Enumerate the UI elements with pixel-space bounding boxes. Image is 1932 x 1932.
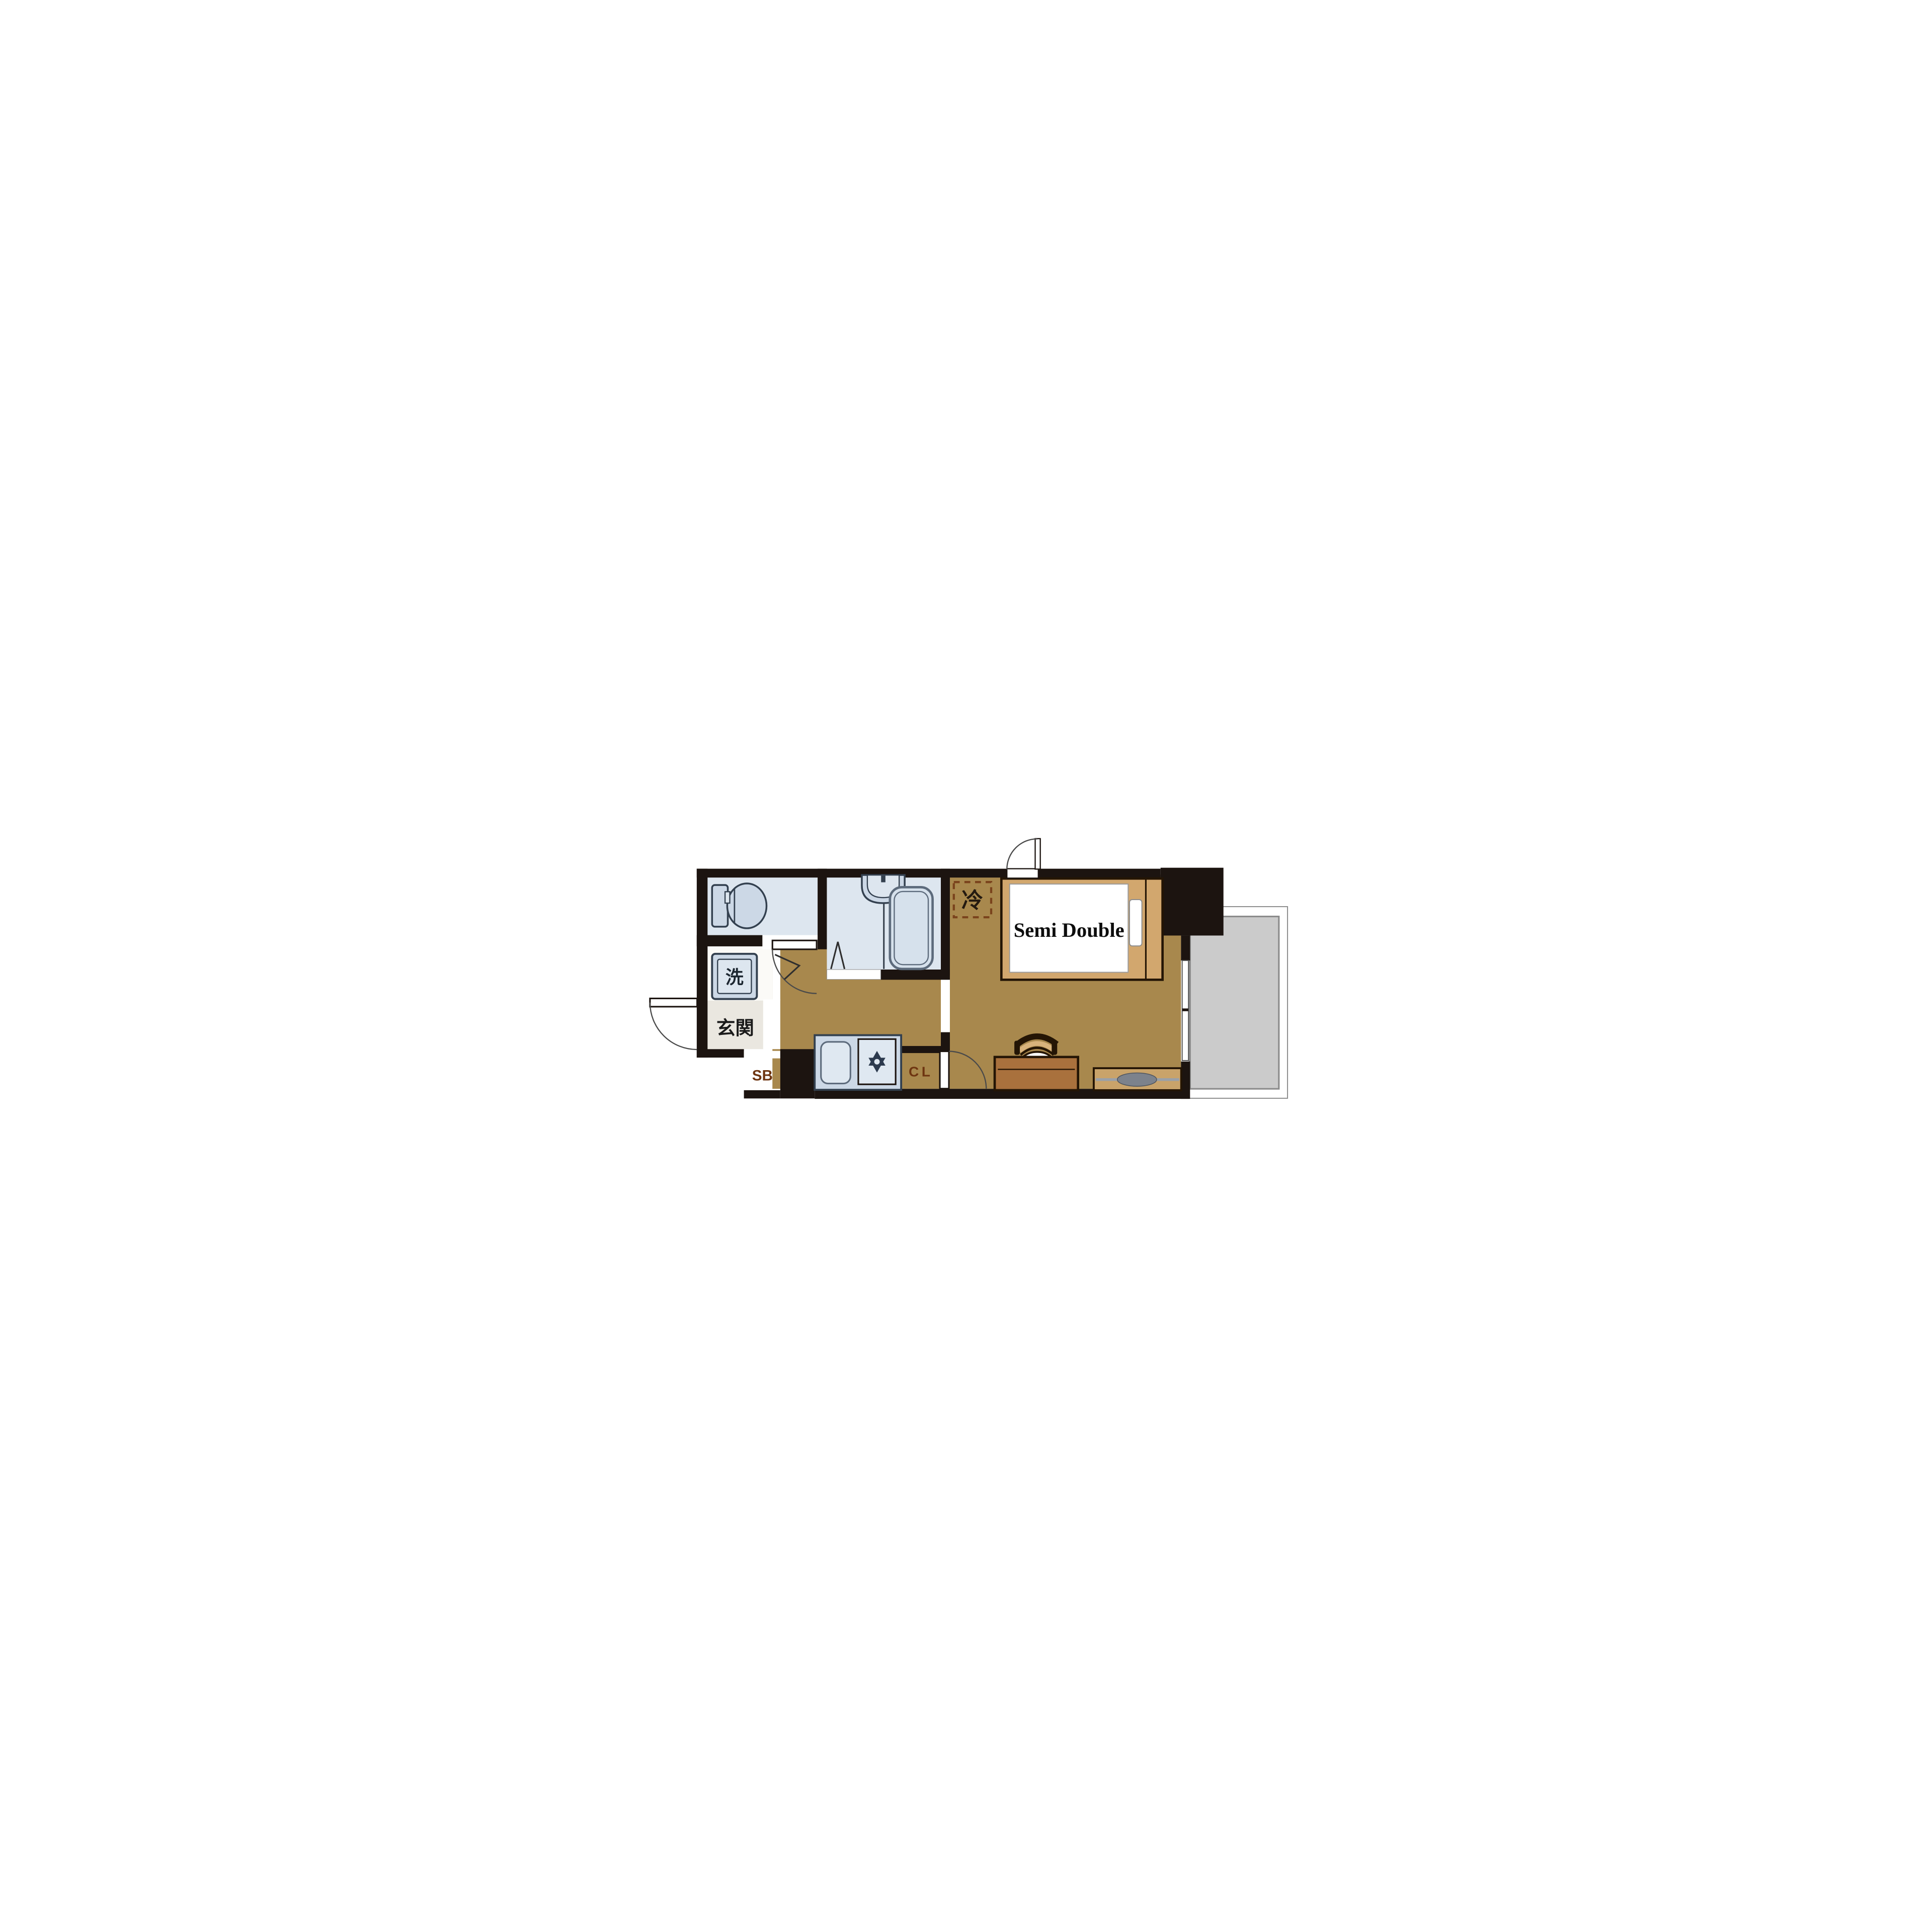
wall-top [697,869,1161,878]
top-door-leaf [1035,839,1040,869]
floor-plan-page: 玄関 洗 冷 SB CL Semi Double [589,589,1343,1343]
desk-top [995,1057,1078,1090]
refrigerator-label: 冷 [961,889,983,913]
wall-partition-mid [941,1032,950,1053]
main-room-door-leaf [940,1052,949,1089]
partition-opening [941,976,950,1032]
basin-faucet [881,875,886,882]
shoebox-sill [744,1051,780,1059]
window-pane-bottom [1182,1010,1189,1061]
kitchen-counter [815,1035,901,1090]
top-door-opening [1007,869,1038,878]
balcony-window [1182,960,1189,1061]
window-divider [1182,1008,1189,1011]
wall-right-upper [1181,935,1190,960]
toilet-icon [712,883,766,928]
wall-above-closet [901,1046,941,1053]
wall-right-lower [1181,1062,1190,1099]
balcony-deck [1190,917,1279,1089]
pillar [1161,868,1224,936]
top-door [1007,839,1040,878]
burner-center [874,1059,880,1065]
entry-door [650,998,697,1050]
kitchen-sink [821,1042,851,1084]
tv-icon [1117,1073,1157,1087]
wall-toilet-bath-divider [818,869,827,949]
entry-door-leaf [650,998,697,1006]
toilet-flush-button [725,892,730,903]
top-door-swing-arc [1007,839,1037,869]
wall-genkan-bottom [697,1049,744,1058]
chair-post [1052,1040,1057,1055]
wall-partition-upper [941,869,950,976]
bed-pillow [1130,900,1142,946]
toilet-bowl [727,883,766,928]
washroom-door-leaf [772,940,817,949]
floor-plan-drawing: 玄関 洗 冷 SB CL Semi Double [589,589,1343,1343]
wall-under-shoebox [744,1090,780,1098]
wall-toilet-bottom [697,935,762,946]
tv-board [1094,1068,1181,1090]
genkan-step-sill [763,999,780,1049]
bed-size-label: Semi Double [1014,919,1124,941]
wall-shoebox-side [780,1049,815,1098]
shoe-box-label: SB [752,1067,773,1084]
entrance-label: 玄関 [716,1017,754,1038]
entry-door-swing-arc [650,1003,697,1050]
window-pane-top [1182,960,1189,1009]
wall-left [697,869,707,1058]
bathtub-outer [890,887,933,969]
bath-door-sill [827,970,880,980]
washing-machine-label: 洗 [726,967,744,987]
closet-label: CL [909,1064,933,1080]
chair-post [1014,1040,1020,1055]
wall-bath-bottom [880,970,950,980]
desk [995,1057,1078,1090]
